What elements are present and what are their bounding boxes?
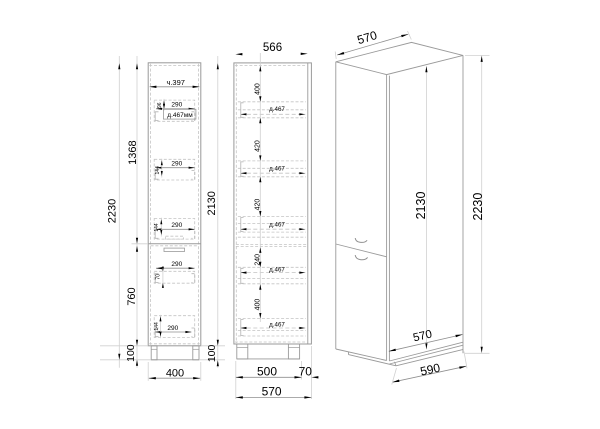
svg-text:2230: 2230 [106, 199, 118, 223]
svg-text:70: 70 [156, 274, 162, 280]
svg-text:240: 240 [255, 254, 262, 266]
svg-text:420: 420 [255, 140, 262, 152]
svg-text:760: 760 [126, 287, 138, 305]
svg-text:400: 400 [255, 299, 262, 311]
svg-text:144: 144 [154, 223, 160, 232]
svg-text:566: 566 [263, 42, 282, 54]
svg-text:д.467: д.467 [269, 106, 285, 113]
svg-text:100: 100 [125, 344, 137, 362]
svg-text:144: 144 [154, 322, 160, 331]
svg-text:400: 400 [166, 367, 184, 379]
svg-text:2230: 2230 [471, 193, 485, 221]
svg-text:100: 100 [206, 344, 218, 362]
svg-text:ч.397: ч.397 [166, 78, 185, 87]
svg-text:290: 290 [171, 160, 182, 167]
svg-text:1368: 1368 [127, 140, 139, 164]
svg-text:96: 96 [157, 102, 163, 108]
svg-text:500: 500 [257, 365, 277, 379]
svg-text:290: 290 [167, 325, 178, 332]
svg-text:д.467мм: д.467мм [167, 112, 193, 119]
svg-text:290: 290 [171, 102, 182, 109]
svg-text:д.467: д.467 [269, 322, 285, 329]
svg-text:2130: 2130 [414, 192, 428, 220]
svg-text:70: 70 [299, 365, 313, 379]
svg-text:290: 290 [171, 222, 182, 229]
svg-text:420: 420 [255, 199, 262, 211]
svg-text:400: 400 [255, 83, 262, 95]
svg-text:570: 570 [262, 384, 282, 398]
svg-text:д.467: д.467 [269, 221, 285, 228]
svg-text:144: 144 [155, 166, 161, 175]
svg-text:2130: 2130 [206, 191, 218, 215]
svg-text:290: 290 [171, 261, 182, 268]
svg-text:д.467: д.467 [269, 266, 285, 273]
svg-text:д.467: д.467 [269, 166, 285, 173]
